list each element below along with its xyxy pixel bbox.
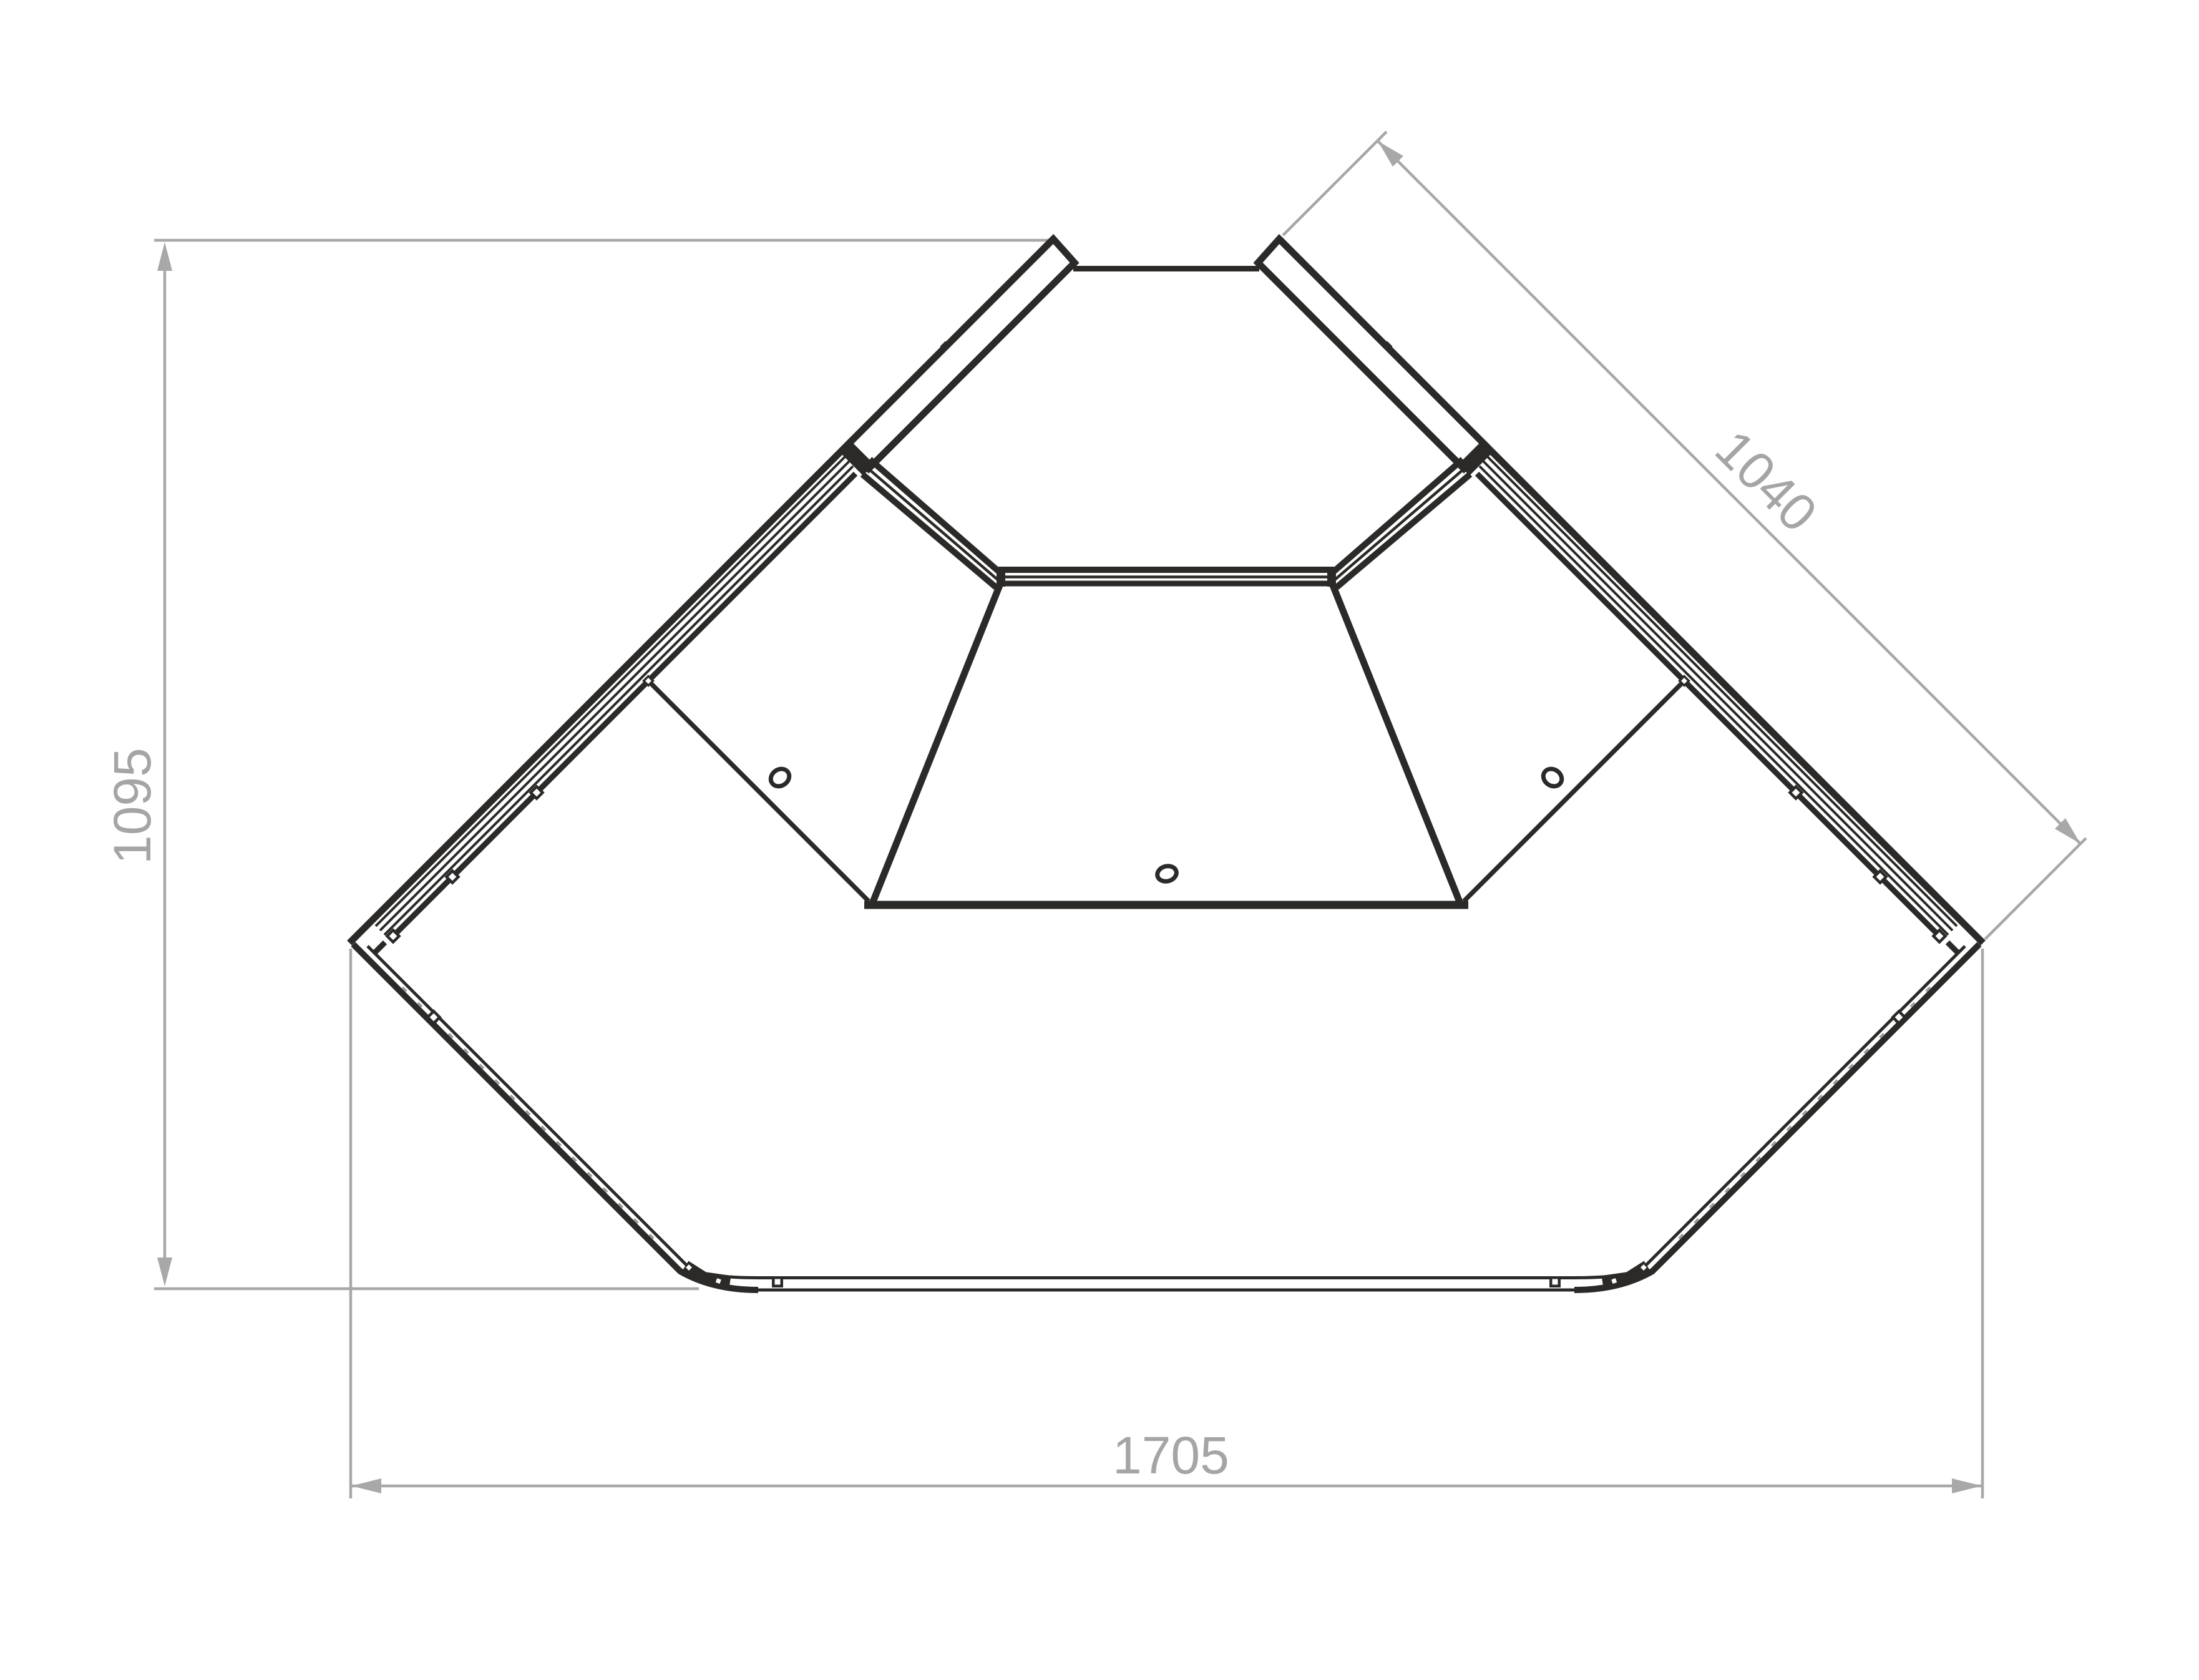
svg-text:1705: 1705 [1113, 1426, 1229, 1485]
svg-text:1095: 1095 [103, 748, 162, 864]
